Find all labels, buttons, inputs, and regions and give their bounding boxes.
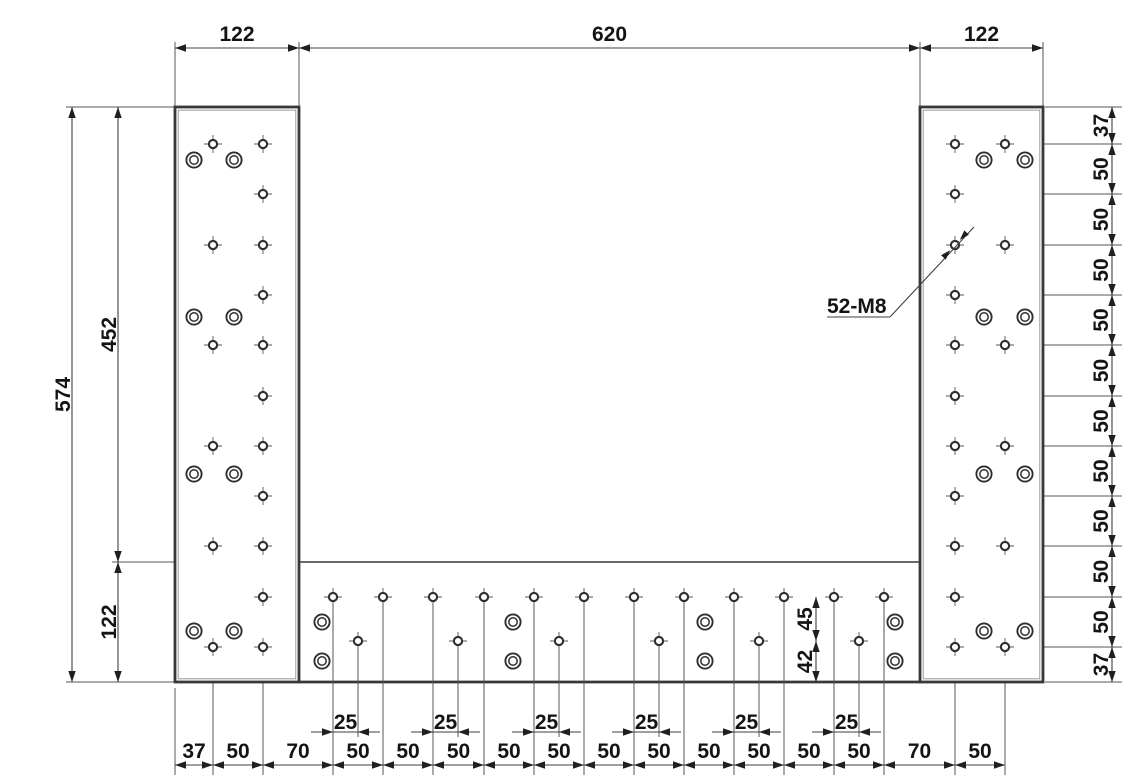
- counterbore-hole-inner: [980, 470, 988, 478]
- counterbore-hole-inner: [190, 313, 198, 321]
- counterbore-hole-inner: [980, 627, 988, 635]
- dim-label: 122: [964, 23, 999, 46]
- dim-label: 50: [1090, 157, 1113, 180]
- counterbore-hole-inner: [318, 657, 326, 665]
- dim-label: 50: [547, 740, 570, 763]
- threaded-hole-m8: [1001, 442, 1009, 450]
- dim-label: 50: [747, 740, 770, 763]
- threaded-hole-m8: [830, 593, 838, 601]
- threaded-hole-m8: [630, 593, 638, 601]
- threaded-hole-m8: [259, 140, 267, 148]
- threaded-hole-m8: [259, 593, 267, 601]
- threaded-hole-m8: [259, 341, 267, 349]
- part-right-column: [920, 107, 1043, 682]
- threaded-hole-m8: [951, 392, 959, 400]
- threaded-hole-m8: [951, 593, 959, 601]
- threaded-hole-m8: [780, 593, 788, 601]
- offset-dim-label: 25: [835, 711, 859, 734]
- dim-label: 37: [1090, 114, 1113, 137]
- counterbore-hole-inner: [980, 156, 988, 164]
- counterbore-hole-inner: [1021, 313, 1029, 321]
- dim-label: 574: [52, 377, 75, 412]
- counterbore-hole-inner: [230, 627, 238, 635]
- threaded-hole-m8: [951, 140, 959, 148]
- counterbore-hole-inner: [980, 313, 988, 321]
- counterbore-hole-inner: [1021, 470, 1029, 478]
- dim-label: 70: [286, 740, 309, 763]
- dim-label: 42: [794, 650, 817, 673]
- threaded-hole-m8: [951, 341, 959, 349]
- dim-label: 452: [98, 317, 121, 352]
- threaded-hole-m8: [855, 637, 863, 645]
- threaded-hole-m8: [259, 643, 267, 651]
- hole-callout-label: 52-M8: [827, 295, 887, 318]
- part-bottom-plate: [299, 562, 920, 682]
- threaded-hole-m8: [880, 593, 888, 601]
- dim-label: 37: [182, 740, 205, 763]
- dim-label: 122: [98, 604, 121, 639]
- threaded-hole-m8: [429, 593, 437, 601]
- threaded-hole-m8: [1001, 140, 1009, 148]
- threaded-hole-m8: [580, 593, 588, 601]
- dim-label: 50: [396, 740, 419, 763]
- counterbore-hole-inner: [1021, 156, 1029, 164]
- threaded-hole-m8: [259, 392, 267, 400]
- dim-label: 50: [1090, 560, 1113, 583]
- dim-label: 50: [1090, 459, 1113, 482]
- dim-label: 122: [219, 23, 254, 46]
- counterbore-hole-inner: [230, 313, 238, 321]
- counterbore-hole-inner: [230, 470, 238, 478]
- dim-label: 50: [847, 740, 870, 763]
- counterbore-hole-inner: [509, 657, 517, 665]
- threaded-hole-m8: [259, 542, 267, 550]
- part-left-column: [175, 107, 299, 682]
- dim-label: 50: [1090, 509, 1113, 532]
- dim-label: 50: [597, 740, 620, 763]
- counterbore-hole-inner: [1021, 627, 1029, 635]
- threaded-hole-m8: [259, 190, 267, 198]
- counterbore-hole-inner: [230, 156, 238, 164]
- dim-label: 45: [794, 607, 817, 631]
- dim-label: 50: [1090, 258, 1113, 281]
- offset-dim-label: 25: [535, 711, 559, 734]
- dim-label: 50: [697, 740, 720, 763]
- threaded-hole-m8: [259, 291, 267, 299]
- dim-label: 50: [1090, 208, 1113, 231]
- dim-label: 50: [1090, 308, 1113, 331]
- threaded-hole-m8: [951, 442, 959, 450]
- threaded-hole-m8: [259, 442, 267, 450]
- threaded-hole-m8: [951, 492, 959, 500]
- threaded-hole-m8: [209, 542, 217, 550]
- threaded-hole-m8: [530, 593, 538, 601]
- technical-drawing-canvas: 1226201225744521223750505050505050505050…: [0, 0, 1147, 783]
- threaded-hole-m8: [755, 637, 763, 645]
- threaded-hole-m8: [730, 593, 738, 601]
- offset-dim-label: 25: [434, 711, 458, 734]
- counterbore-hole-inner: [701, 657, 709, 665]
- threaded-hole-m8: [209, 442, 217, 450]
- threaded-hole-m8: [354, 637, 362, 645]
- threaded-hole-m8: [480, 593, 488, 601]
- threaded-hole-m8: [1001, 341, 1009, 349]
- dim-label: 50: [226, 740, 249, 763]
- dim-label: 50: [1090, 359, 1113, 382]
- counterbore-hole-inner: [318, 618, 326, 626]
- counterbore-hole-inner: [509, 618, 517, 626]
- offset-dim-label: 25: [635, 711, 659, 734]
- threaded-hole-m8: [379, 593, 387, 601]
- counterbore-hole-inner: [190, 470, 198, 478]
- threaded-hole-m8: [454, 637, 462, 645]
- dim-label: 50: [447, 740, 470, 763]
- counterbore-hole-inner: [190, 627, 198, 635]
- dim-label: 37: [1090, 653, 1113, 676]
- counterbore-hole-inner: [891, 618, 899, 626]
- threaded-hole-m8: [259, 241, 267, 249]
- dim-label: 50: [797, 740, 820, 763]
- threaded-hole-m8: [209, 341, 217, 349]
- dim-label: 70: [908, 740, 931, 763]
- threaded-hole-m8: [951, 542, 959, 550]
- threaded-hole-m8: [209, 241, 217, 249]
- threaded-hole-m8: [680, 593, 688, 601]
- dim-label: 50: [1090, 409, 1113, 432]
- offset-dim-label: 25: [735, 711, 759, 734]
- counterbore-hole-inner: [891, 657, 899, 665]
- threaded-hole-m8: [1001, 241, 1009, 249]
- dim-label: 50: [1090, 610, 1113, 633]
- threaded-hole-m8: [655, 637, 663, 645]
- dim-label: 50: [647, 740, 670, 763]
- threaded-hole-m8: [259, 492, 267, 500]
- threaded-hole-m8: [951, 291, 959, 299]
- offset-dim-label: 25: [334, 711, 358, 734]
- dim-label: 620: [592, 23, 627, 46]
- threaded-hole-m8: [329, 593, 337, 601]
- drawing-svg: 1226201225744521223750505050505050505050…: [0, 0, 1147, 783]
- dim-label: 50: [968, 740, 991, 763]
- threaded-hole-m8: [951, 190, 959, 198]
- counterbore-hole-inner: [190, 156, 198, 164]
- threaded-hole-m8: [555, 637, 563, 645]
- counterbore-hole-inner: [701, 618, 709, 626]
- threaded-hole-m8: [1001, 542, 1009, 550]
- threaded-hole-m8: [209, 140, 217, 148]
- dim-label: 50: [497, 740, 520, 763]
- dim-label: 50: [346, 740, 369, 763]
- threaded-hole-m8: [1001, 643, 1009, 651]
- threaded-hole-m8: [209, 643, 217, 651]
- threaded-hole-m8: [951, 643, 959, 651]
